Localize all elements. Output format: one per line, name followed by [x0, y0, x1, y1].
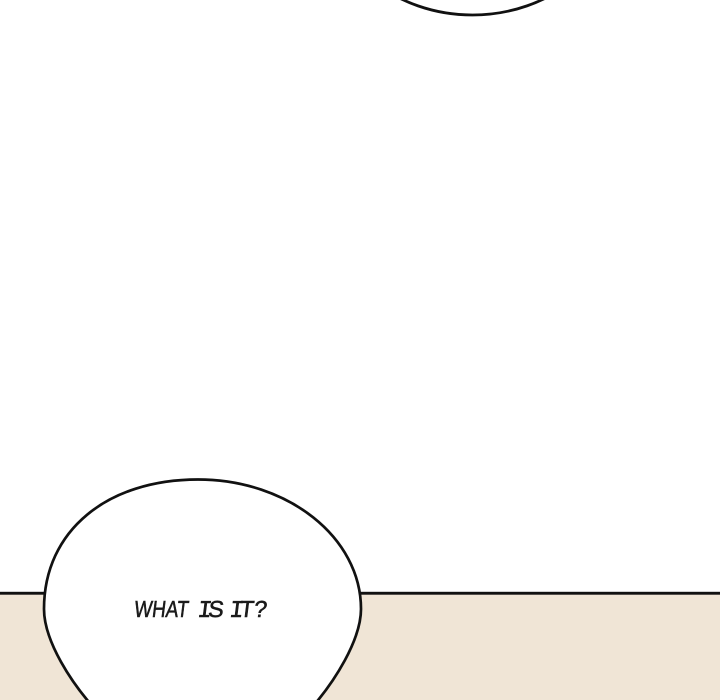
svg-text:WHAT: WHAT: [133, 596, 190, 622]
svg-text:IS: IS: [196, 596, 226, 625]
svg-text:IT?: IT?: [228, 596, 269, 625]
